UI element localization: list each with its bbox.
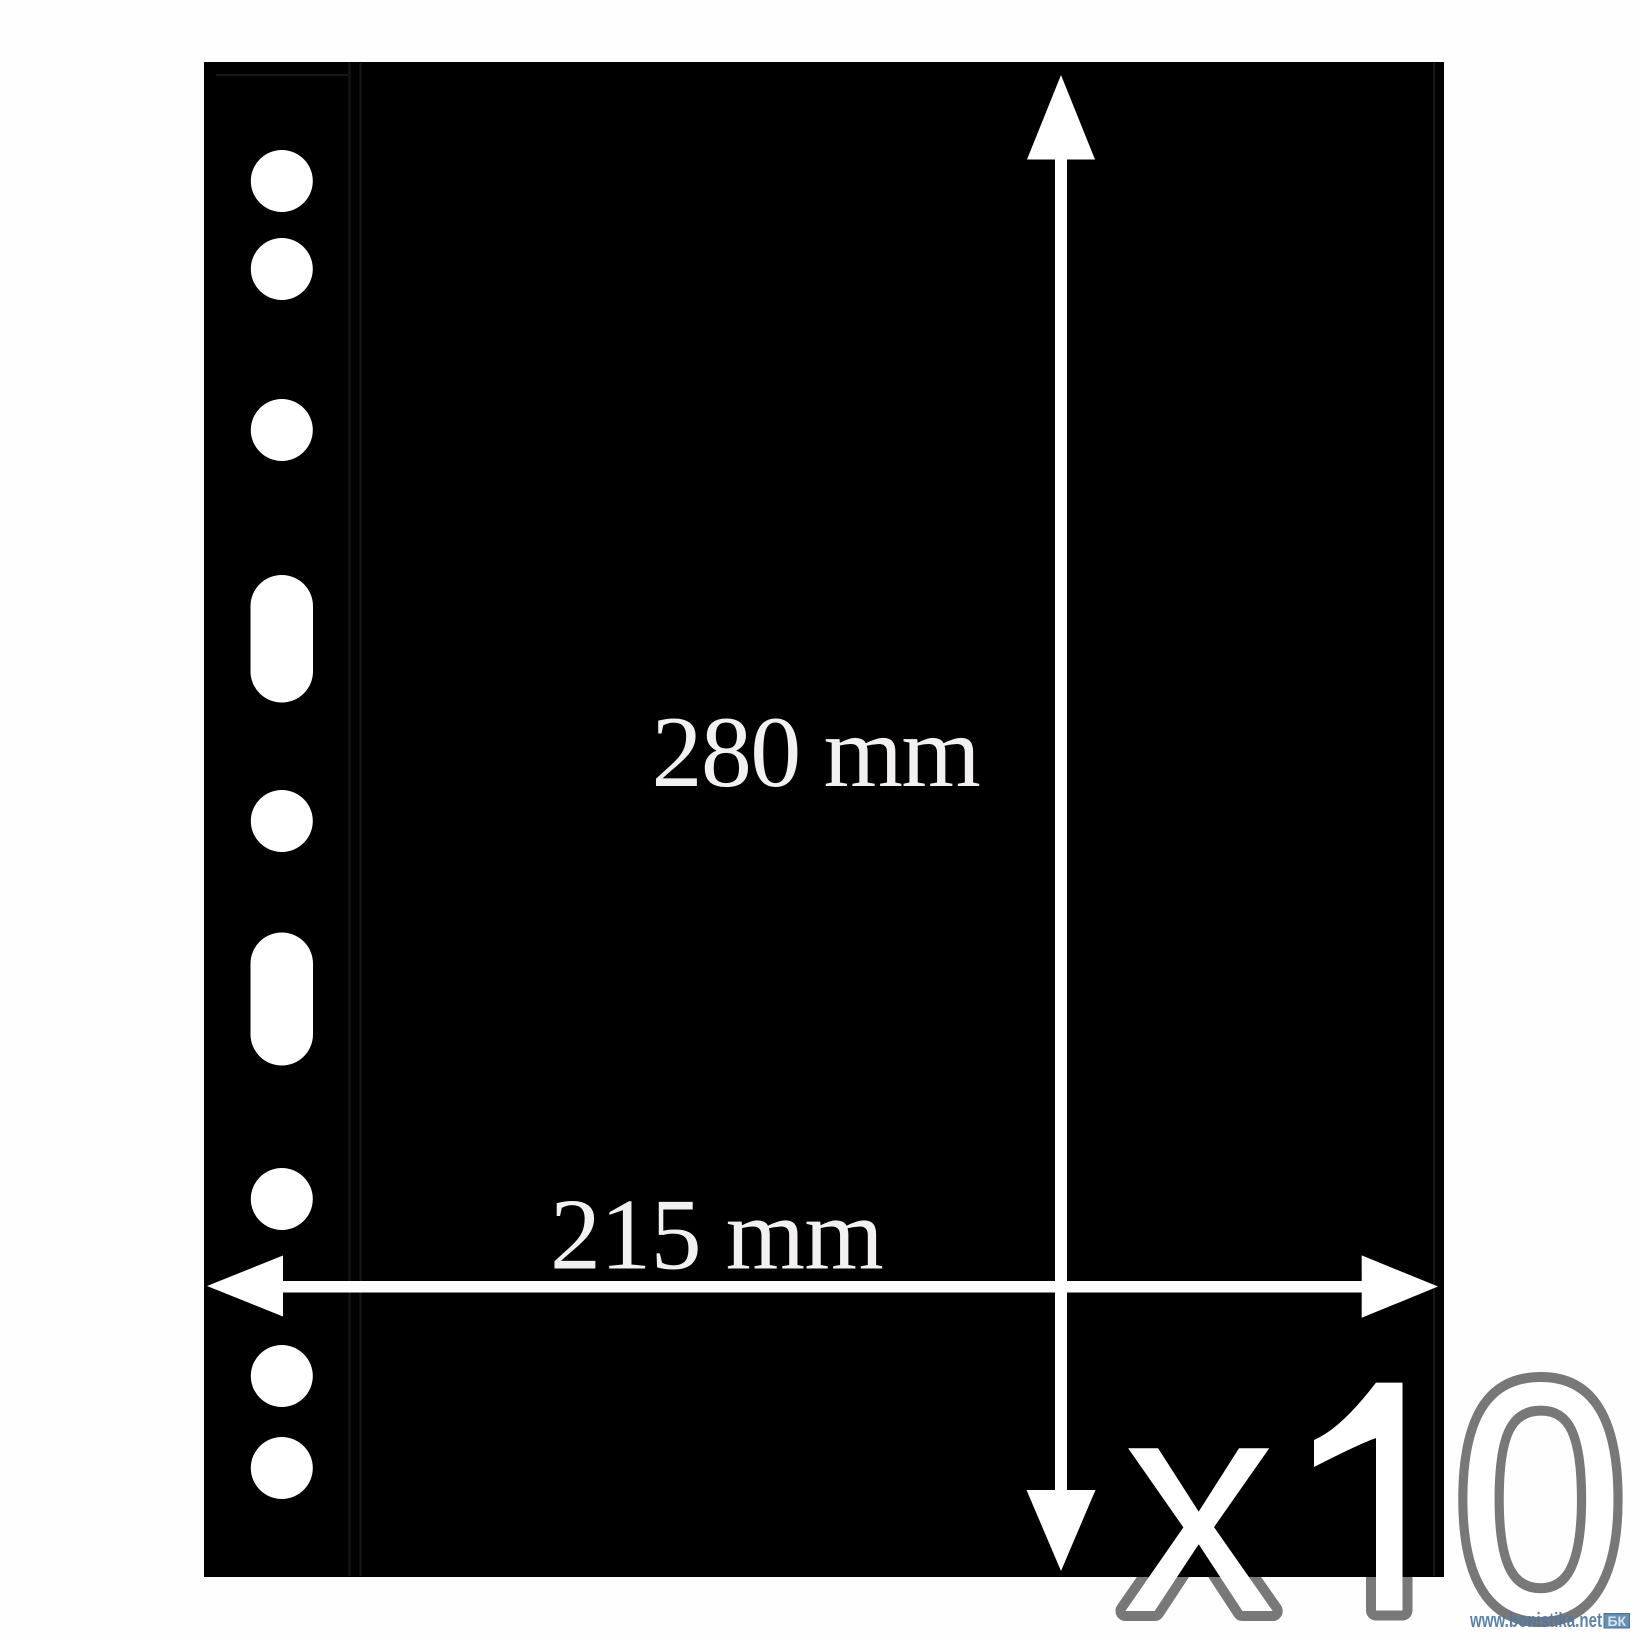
svg-text:x: x	[1122, 1333, 1276, 1640]
svg-text:www.bonistika.net: www.bonistika.net	[1469, 1610, 1602, 1632]
svg-text:БК: БК	[1607, 1613, 1626, 1629]
svg-text:215 mm: 215 mm	[550, 1179, 883, 1292]
svg-text:0: 0	[1456, 1313, 1626, 1640]
svg-text:280 mm: 280 mm	[652, 696, 980, 809]
